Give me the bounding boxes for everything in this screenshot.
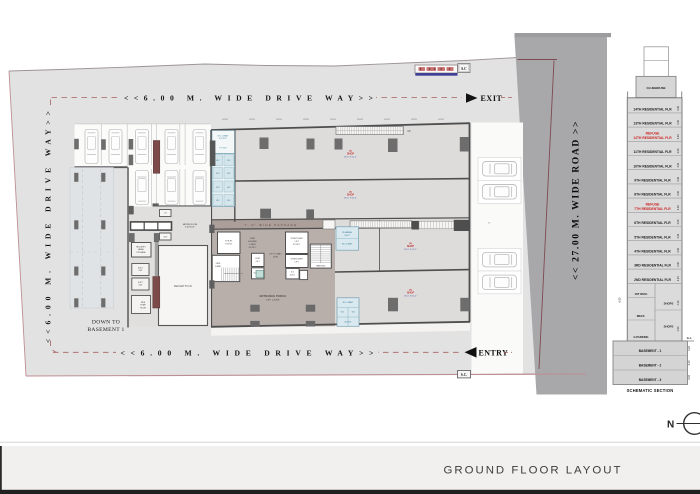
svg-text:SCHEMATIC SECTION: SCHEMATIC SECTION bbox=[627, 388, 674, 393]
svg-text:METER ROOM: METER ROOM bbox=[183, 224, 198, 226]
svg-text:4'X3': 4'X3' bbox=[138, 270, 143, 272]
svg-text:S.C: S.C bbox=[461, 67, 467, 71]
svg-text:DOWN TO: DOWN TO bbox=[92, 320, 120, 326]
svg-text:SHOP: SHOP bbox=[407, 291, 415, 295]
svg-text:3.00: 3.00 bbox=[677, 219, 680, 224]
svg-text:4'0"X6'2": 4'0"X6'2" bbox=[344, 322, 352, 324]
svg-text:TOILET: TOILET bbox=[225, 241, 233, 243]
svg-text:28'-0" X 61'-2": 28'-0" X 61'-2" bbox=[404, 249, 417, 251]
svg-text:PARKING: PARKING bbox=[316, 264, 326, 267]
svg-text:7'0"X5'0": 7'0"X5'0" bbox=[225, 244, 233, 246]
svg-text:<< 27.00 M. WIDE ROAD >>: << 27.00 M. WIDE ROAD >> bbox=[571, 120, 582, 280]
svg-text:9TH RESIDENTIAL FLR: 9TH RESIDENTIAL FLR bbox=[634, 179, 671, 183]
svg-text:3.20: 3.20 bbox=[688, 375, 691, 380]
svg-text:ENTRY: ENTRY bbox=[479, 349, 509, 358]
svg-text:P.T. 3'X5': P.T. 3'X5' bbox=[219, 148, 227, 150]
svg-text:3.20: 3.20 bbox=[688, 360, 691, 365]
svg-text:G.L.: G.L. bbox=[687, 336, 693, 340]
svg-text:4.30: 4.30 bbox=[677, 300, 680, 305]
svg-text:BASEMENT - 2: BASEMENT - 2 bbox=[639, 363, 662, 367]
svg-text:1ST RESI.: 1ST RESI. bbox=[634, 292, 647, 296]
svg-text:CLUBHOUSE: CLUBHOUSE bbox=[646, 86, 665, 90]
svg-text:FIRE: FIRE bbox=[216, 263, 221, 265]
svg-text:2ND RESIDENTIAL FLR: 2ND RESIDENTIAL FLR bbox=[634, 278, 671, 282]
svg-text:DUCT: DUCT bbox=[290, 275, 296, 277]
svg-text:7'-0" WIDE PASSAGE: 7'-0" WIDE PASSAGE bbox=[245, 223, 298, 227]
svg-text:N: N bbox=[667, 420, 674, 431]
svg-text:BASEMENT - 3: BASEMENT - 3 bbox=[639, 378, 662, 382]
svg-text:3.00: 3.00 bbox=[677, 120, 680, 125]
svg-text:STAIR: STAIR bbox=[215, 265, 221, 268]
svg-text:3.00: 3.00 bbox=[677, 176, 680, 181]
svg-text:3.00: 3.00 bbox=[677, 191, 680, 196]
svg-text:3.00: 3.00 bbox=[677, 233, 680, 238]
svg-text:4'10"X5'10": 4'10"X5'10" bbox=[185, 227, 195, 229]
svg-text:STORAGE: STORAGE bbox=[136, 251, 146, 254]
svg-text:28'-0" X 61'-2": 28'-0" X 61'-2" bbox=[404, 296, 417, 298]
svg-text:3.00: 3.00 bbox=[677, 247, 680, 252]
svg-text:W.C LOBBY: W.C LOBBY bbox=[343, 302, 354, 304]
svg-text:SECURITY: SECURITY bbox=[136, 247, 146, 249]
svg-text:4TH RESIDENTIAL FLR: 4TH RESIDENTIAL FLR bbox=[634, 250, 671, 254]
svg-text:AREA: AREA bbox=[138, 248, 144, 251]
svg-text:LIFT LOBBY: LIFT LOBBY bbox=[269, 254, 282, 256]
svg-text:28'-0" X 61'-2": 28'-0" X 61'-2" bbox=[344, 198, 357, 200]
svg-text:3RD RESIDENTIAL FLR: 3RD RESIDENTIAL FLR bbox=[634, 264, 671, 268]
svg-text:14TH RESIDENTIAL FLR: 14TH RESIDENTIAL FLR bbox=[633, 108, 672, 112]
svg-text:3.20: 3.20 bbox=[688, 346, 691, 351]
svg-text:EXIT: EXIT bbox=[481, 94, 503, 103]
svg-text:4.50: 4.50 bbox=[677, 326, 680, 331]
svg-text:W.C LOBBY: W.C LOBBY bbox=[217, 136, 229, 138]
svg-text:PLUMBING: PLUMBING bbox=[342, 232, 352, 234]
svg-text:3.00: 3.00 bbox=[677, 105, 680, 110]
svg-text:10TH RESIDENTIAL FLR: 10TH RESIDENTIAL FLR bbox=[633, 164, 672, 168]
svg-text:4'X3': 4'X3' bbox=[163, 236, 168, 238]
svg-text:S.C.: S.C. bbox=[461, 373, 467, 377]
svg-text:G.PARKING: G.PARKING bbox=[633, 335, 648, 339]
svg-text:SHOP: SHOP bbox=[347, 152, 355, 156]
svg-text:LOBBY: LOBBY bbox=[249, 244, 257, 246]
svg-text:4'X3': 4'X3' bbox=[138, 285, 143, 287]
svg-text:13TH RESIDENTIAL FLR: 13TH RESIDENTIAL FLR bbox=[633, 122, 672, 126]
svg-text:7TH RESIDENTIAL FLR: 7TH RESIDENTIAL FLR bbox=[634, 207, 671, 211]
svg-text:3.00: 3.00 bbox=[677, 134, 680, 139]
svg-text:SHOPS: SHOPS bbox=[664, 302, 674, 306]
svg-text:RECEPTION: RECEPTION bbox=[174, 284, 192, 288]
svg-text:DEP & ARR: DEP & ARR bbox=[266, 298, 280, 301]
svg-text:SHOP: SHOP bbox=[347, 193, 355, 197]
svg-text:DUCT: DUCT bbox=[345, 235, 351, 237]
svg-text:STRETCHER: STRETCHER bbox=[291, 259, 304, 261]
svg-text:8TH RESIDENTIAL FLR: 8TH RESIDENTIAL FLR bbox=[634, 193, 671, 197]
svg-text:3.00: 3.00 bbox=[677, 205, 680, 210]
svg-text:SHOPS: SHOPS bbox=[664, 325, 674, 329]
svg-text:GROUND FLOOR LAYOUT: GROUND FLOOR LAYOUT bbox=[444, 465, 623, 477]
svg-text:11TH RESIDENTIAL FLR: 11TH RESIDENTIAL FLR bbox=[633, 150, 672, 154]
svg-text:3.00: 3.00 bbox=[677, 276, 680, 281]
svg-text:ESCAPE: ESCAPE bbox=[248, 240, 257, 243]
svg-text:3.00: 3.00 bbox=[677, 262, 680, 267]
svg-text:ENTRANCE PORCH: ENTRANCE PORCH bbox=[260, 295, 286, 298]
svg-text:8'0"X6'5": 8'0"X6'5" bbox=[293, 244, 301, 246]
svg-text:6'0"X4'5": 6'0"X4'5" bbox=[249, 247, 257, 249]
svg-text:UP: UP bbox=[408, 131, 412, 133]
svg-text:SHOP: SHOP bbox=[407, 244, 415, 248]
svg-text:FIRE: FIRE bbox=[256, 258, 261, 260]
svg-text:FIRE: FIRE bbox=[250, 238, 255, 240]
svg-text:MEZZ.: MEZZ. bbox=[637, 314, 646, 318]
svg-text:3.00: 3.00 bbox=[677, 162, 680, 167]
svg-text:ROOM: ROOM bbox=[140, 307, 146, 309]
svg-text:4'-0"X6'-2": 4'-0"X6'-2" bbox=[219, 138, 228, 140]
svg-text:W.C LOBBY: W.C LOBBY bbox=[342, 244, 353, 246]
svg-text:STRETCHER: STRETCHER bbox=[291, 238, 304, 240]
svg-text:10'X8': 10'X8' bbox=[273, 257, 279, 259]
svg-text:6.00: 6.00 bbox=[619, 297, 622, 302]
svg-text:6TH RESIDENTIAL FLR: 6TH RESIDENTIAL FLR bbox=[634, 221, 671, 225]
svg-text:5TH RESIDENTIAL FLR: 5TH RESIDENTIAL FLR bbox=[634, 235, 671, 239]
svg-text:PUMP: PUMP bbox=[140, 305, 146, 307]
svg-text:BASEMENT - 1: BASEMENT - 1 bbox=[639, 349, 662, 353]
svg-text:BASEMENT 1: BASEMENT 1 bbox=[87, 327, 124, 333]
svg-text:3.00: 3.00 bbox=[677, 148, 680, 153]
svg-text:12TH RESIDENTIAL FLR: 12TH RESIDENTIAL FLR bbox=[633, 136, 672, 140]
svg-text:28'-0" X 61'-2": 28'-0" X 61'-2" bbox=[344, 157, 357, 159]
